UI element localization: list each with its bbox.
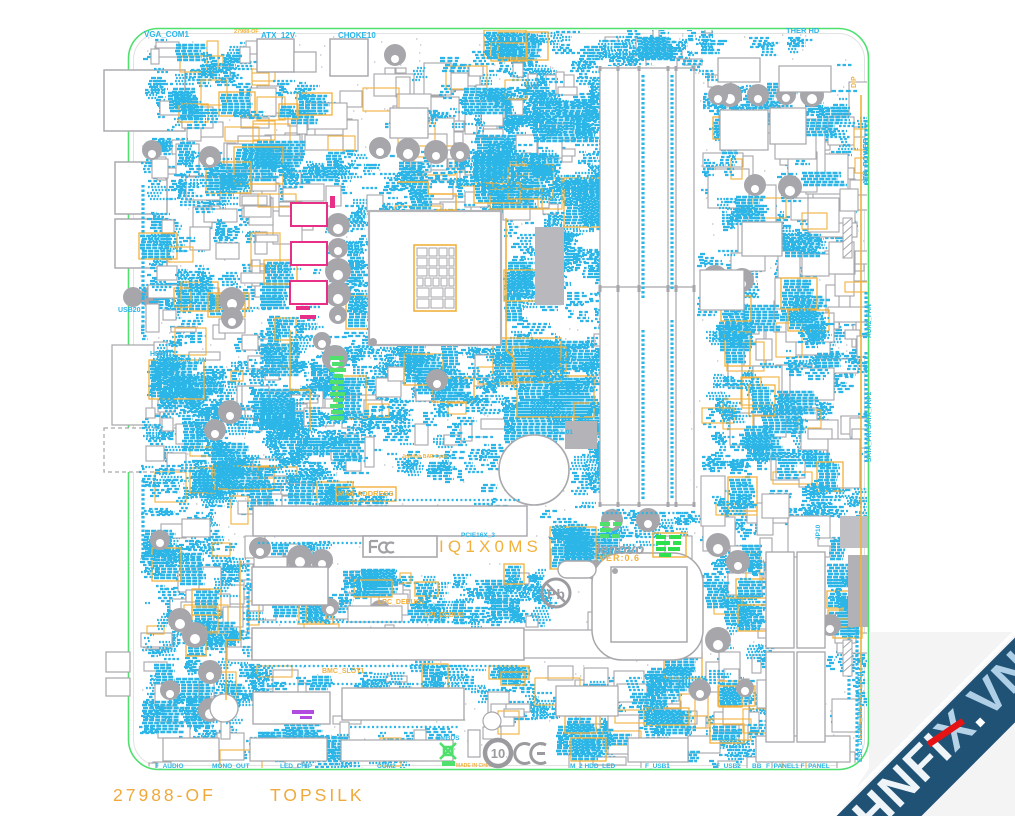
svg-text:SATA_PRI SATA_PRP2: SATA_PRI SATA_PRP2 [866,391,873,462]
svg-text:JointInb BAR Code: JointInb BAR Code [402,454,448,460]
svg-text:USB20: USB20 [118,307,141,314]
svg-text:F_USB2: F_USB2 [716,763,741,770]
svg-text:DIP: DIP [851,76,858,88]
svg-text:27988-OF: 27988-OF [234,29,259,35]
svg-text:SMBUS: SMBUS [436,735,460,742]
svg-text:ATX_POWER: ATX_POWER [861,137,870,185]
svg-text:MONO_OUT: MONO_OUT [212,763,250,770]
svg-text:CPU FAN: CPU FAN [531,98,560,105]
svg-text:F_AUDIO: F_AUDIO [155,763,184,770]
svg-text:LPC_DEBUG1: LPC_DEBUG1 [378,599,425,606]
svg-text:BAT 01: BAT 01 [551,429,573,436]
svg-text:TOPSILK: TOPSILK [270,785,365,805]
svg-text:10: 10 [491,746,505,761]
svg-text:F_USB1: F_USB1 [645,763,670,770]
svg-text:F_PANEL1 F_PANEL: F_PANEL1 F_PANEL [766,763,830,770]
svg-text:ATX_12V: ATX_12V [261,31,296,40]
svg-text:U1: U1 [282,317,291,324]
svg-text:AUDIO: AUDIO [146,431,172,440]
svg-text:AUX2_FAN: AUX2_FAN [866,304,873,338]
svg-text:BB: BB [752,763,762,770]
svg-text:LED_CHIP: LED_CHIP [280,763,313,770]
svg-text:ESB_DIS1NE_DIS AUX1_FAN: ESB_DIS1NE_DIS AUX1_FAN [857,671,864,762]
svg-text:M_2 HDD_LED: M_2 HDD_LED [570,763,615,770]
svg-text:BMC_SLOT1: BMC_SLOT1 [322,668,365,675]
svg-text:IQ1X0MS: IQ1X0MS [439,537,542,556]
svg-text:CHOKE10: CHOKE10 [338,31,376,40]
svg-text:SPI_DEBUG: SPI_DEBUG [424,612,465,619]
svg-text:COM2: COM2 [377,763,396,770]
svg-text:JP10: JP10 [815,524,822,540]
svg-text:VGA_COM1: VGA_COM1 [144,30,189,39]
svg-text:THER HD: THER HD [786,26,820,35]
svg-text:USB_LAN: USB_LAN [178,358,206,364]
svg-text:VER:0.6: VER:0.6 [599,553,640,563]
svg-text:HDMI1: HDMI1 [150,351,172,358]
svg-text:27988-OF: 27988-OF [113,785,216,805]
svg-text:MAC ADDRESS: MAC ADDRESS [338,489,394,498]
